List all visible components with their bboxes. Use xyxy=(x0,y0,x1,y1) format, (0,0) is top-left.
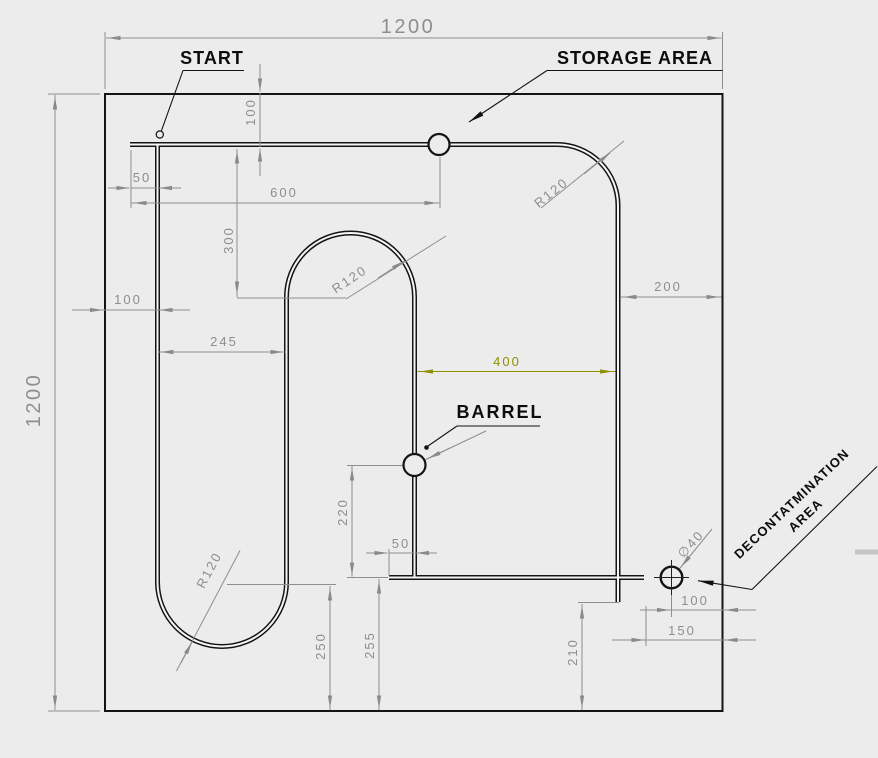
dim-sheet-height[interactable]: 1200 xyxy=(23,94,100,711)
dim-decon-offset-wall-label[interactable]: 150 xyxy=(668,623,696,638)
dim-bottom-stub-label[interactable]: 50 xyxy=(392,536,410,551)
dim-tail-end-height[interactable]: 210 xyxy=(565,603,619,711)
dim-corner-radius-label[interactable]: R120 xyxy=(531,174,571,210)
storage-area-marker-circle[interactable] xyxy=(429,134,450,155)
dim-decon-offset-circle[interactable]: 100 xyxy=(640,593,756,617)
start-point-circle[interactable] xyxy=(156,131,163,138)
dim-barrel-to-bottom-label[interactable]: 220 xyxy=(335,498,350,526)
callout-storage-area[interactable]: STORAGE AREA xyxy=(469,48,723,122)
leader-arrow xyxy=(698,581,752,590)
decontamination-label-line1[interactable]: DECONTATMINATION xyxy=(731,446,852,562)
edge-tick xyxy=(855,550,878,555)
dim-start-overhang[interactable]: 50 xyxy=(108,150,181,208)
leader-dot xyxy=(424,445,429,450)
dim-decon-offset-circle-label[interactable]: 100 xyxy=(681,593,709,608)
dim-track-left-margin-label[interactable]: 100 xyxy=(114,292,142,307)
drawing-canvas: 1200 1200 100 50 600 300 xyxy=(0,0,878,758)
dim-corridor-width-label[interactable]: 400 xyxy=(493,354,521,369)
dim-track-top-offset-label[interactable]: 100 xyxy=(243,98,258,126)
dim-corridor-width[interactable]: 400 xyxy=(418,354,616,372)
drawing-sheet: 1200 1200 100 50 600 300 xyxy=(0,0,878,758)
dim-decon-offset-wall[interactable]: 150 xyxy=(612,606,756,646)
dim-uturn-center-height-label[interactable]: 250 xyxy=(313,632,328,660)
dim-track-right-margin[interactable]: 200 xyxy=(621,279,722,297)
decontamination-label-group: DECONTATMINATION AREA xyxy=(731,446,865,575)
leader-line xyxy=(162,71,184,131)
dim-arch-radius-label[interactable]: R120 xyxy=(329,262,370,296)
barrel-marker-circle[interactable] xyxy=(404,454,426,476)
callout-barrel[interactable]: BARREL xyxy=(424,402,543,450)
arrow xyxy=(181,642,192,663)
leader-line xyxy=(428,426,457,446)
dim-track-right-margin-label[interactable]: 200 xyxy=(654,279,682,294)
dim-bottom-stub[interactable]: 50 xyxy=(366,536,437,576)
dim-arch-left-offset[interactable]: 245 xyxy=(158,334,286,352)
dim-start-overhang-label[interactable]: 50 xyxy=(133,170,151,185)
dim-sheet-width-label[interactable]: 1200 xyxy=(381,16,436,38)
dim-arch-center-drop-label[interactable]: 300 xyxy=(221,226,236,254)
dim-bottom-line-height-label[interactable]: 255 xyxy=(362,631,377,659)
dim-storage-from-start[interactable]: 600 xyxy=(131,157,440,208)
callout-decontamination[interactable]: DECONTATMINATION AREA xyxy=(698,446,877,590)
arrow xyxy=(378,261,404,278)
dim-uturn-radius-label[interactable]: R120 xyxy=(193,549,225,591)
dim-storage-from-start-label[interactable]: 600 xyxy=(270,185,298,200)
dim-sheet-height-label[interactable]: 1200 xyxy=(23,373,45,428)
dim-bottom-line-height[interactable]: 255 xyxy=(362,579,379,710)
dim-arch-left-offset-label[interactable]: 245 xyxy=(210,334,238,349)
arrow xyxy=(428,448,450,459)
dim-uturn-radius[interactable]: R120 xyxy=(177,549,241,671)
decontamination-target-circle[interactable] xyxy=(654,560,689,595)
leader-arrow xyxy=(469,71,547,123)
start-label[interactable]: START xyxy=(180,48,244,68)
dim-barrel-to-bottom[interactable]: 220 xyxy=(335,466,404,578)
dim-tail-end-height-label[interactable]: 210 xyxy=(565,638,580,666)
dim-arch-center-drop[interactable]: 300 xyxy=(221,149,346,298)
barrel-label[interactable]: BARREL xyxy=(457,402,544,422)
callout-start[interactable]: START xyxy=(162,48,245,131)
dim-track-top-offset[interactable]: 100 xyxy=(243,64,260,176)
dim-track-left-margin[interactable]: 100 xyxy=(72,292,190,310)
storage-area-label[interactable]: STORAGE AREA xyxy=(557,48,713,68)
